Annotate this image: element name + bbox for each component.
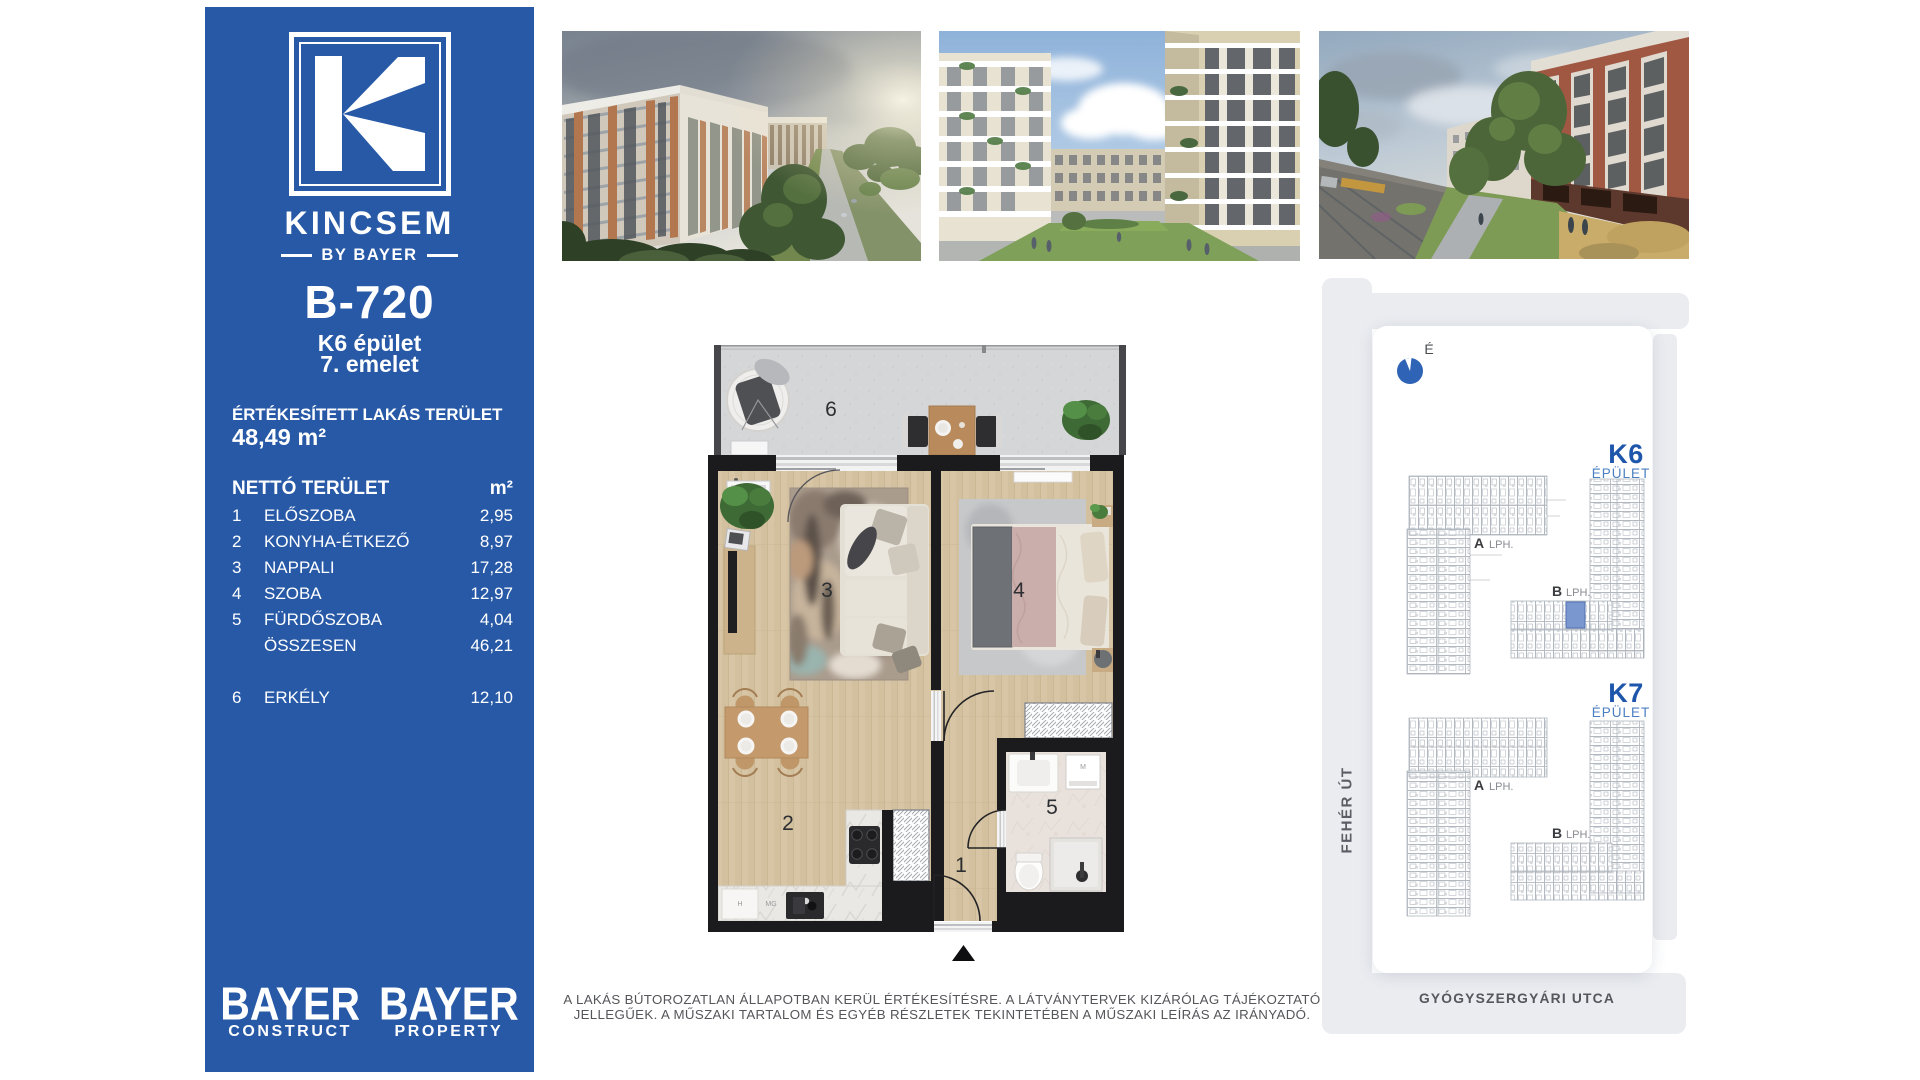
svg-text:2: 2 — [782, 812, 794, 835]
svg-text:LPH.: LPH. — [1566, 829, 1590, 841]
svg-text:A: A — [1474, 777, 1484, 793]
svg-text:4: 4 — [1013, 579, 1025, 602]
svg-text:ÉPÜLET: ÉPÜLET — [1592, 705, 1651, 720]
svg-text:MG: MG — [765, 901, 776, 908]
svg-text:B: B — [1552, 825, 1562, 841]
svg-text:3: 3 — [821, 579, 833, 602]
svg-text:É: É — [1424, 341, 1433, 357]
svg-text:ÉPÜLET: ÉPÜLET — [1592, 466, 1651, 481]
svg-text:6: 6 — [825, 398, 837, 421]
svg-text:B: B — [1552, 583, 1562, 599]
svg-text:A: A — [1474, 535, 1484, 551]
svg-text:LPH.: LPH. — [1566, 587, 1590, 599]
svg-text:LPH.: LPH. — [1489, 539, 1513, 551]
svg-text:LPH.: LPH. — [1489, 781, 1513, 793]
svg-text:K6: K6 — [1608, 439, 1644, 469]
svg-text:H: H — [737, 901, 742, 908]
svg-text:K7: K7 — [1608, 678, 1644, 708]
svg-text:5: 5 — [1046, 796, 1058, 819]
svg-text:1: 1 — [955, 854, 967, 877]
svg-text:M: M — [1080, 764, 1086, 771]
